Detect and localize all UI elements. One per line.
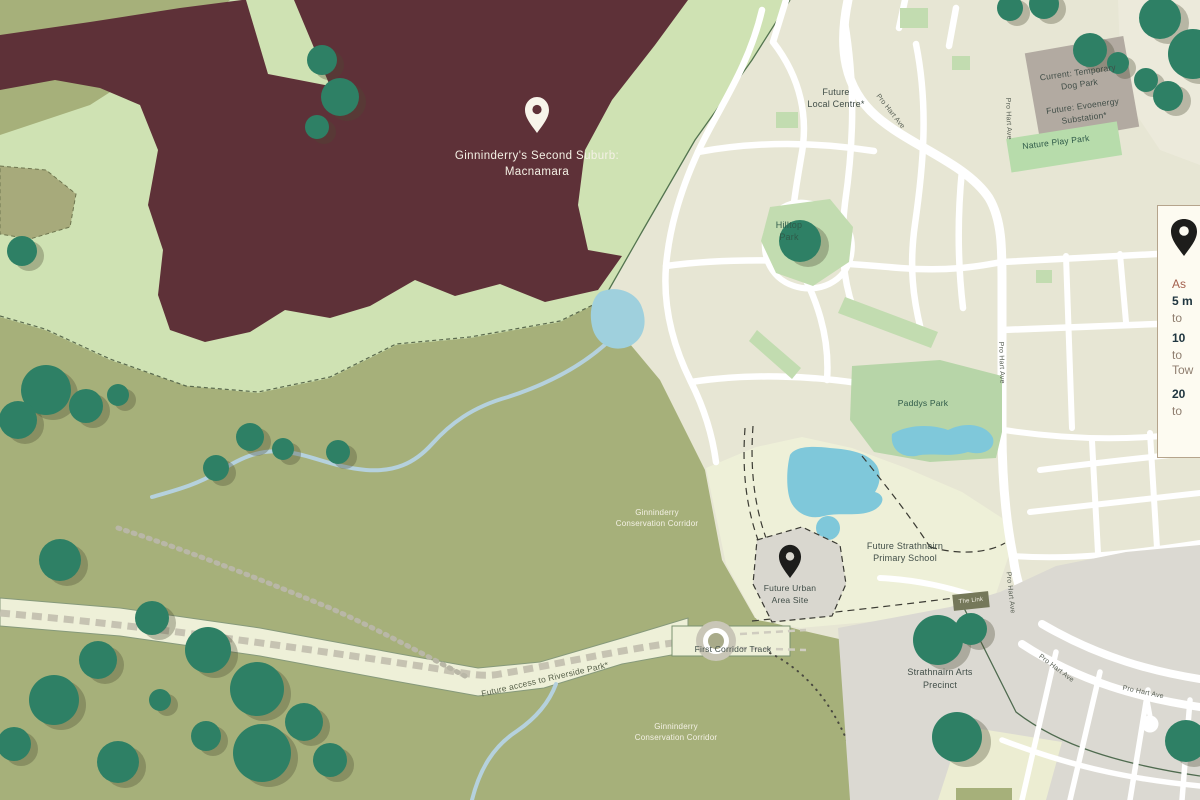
- wetland-pond: [787, 447, 882, 517]
- panel-line-3: to: [1172, 311, 1182, 325]
- future-urban-area-site: [753, 527, 846, 622]
- panel-line-6: Tow: [1172, 363, 1193, 377]
- panel-line-5: to: [1172, 348, 1182, 362]
- travel-times-panel: As 5 m to 10 to Tow 20 to: [1157, 205, 1200, 458]
- location-pin-icon: [1171, 219, 1197, 257]
- bottom-olive-strip: [956, 788, 1012, 800]
- cul-de-sac: [1142, 716, 1159, 733]
- paddys-pond: [892, 425, 994, 456]
- panel-line-4: 10: [1172, 331, 1185, 345]
- panel-line-8: to: [1172, 404, 1182, 418]
- panel-line-7: 20: [1172, 387, 1185, 401]
- panel-line-1: As: [1172, 277, 1186, 291]
- roundabout: [706, 631, 727, 652]
- masterplan-map: Ginninderry's Second Suburb: Macnamara F…: [0, 0, 1200, 800]
- panel-line-2: 5 m: [1172, 294, 1193, 308]
- map-graphics: [0, 0, 1200, 800]
